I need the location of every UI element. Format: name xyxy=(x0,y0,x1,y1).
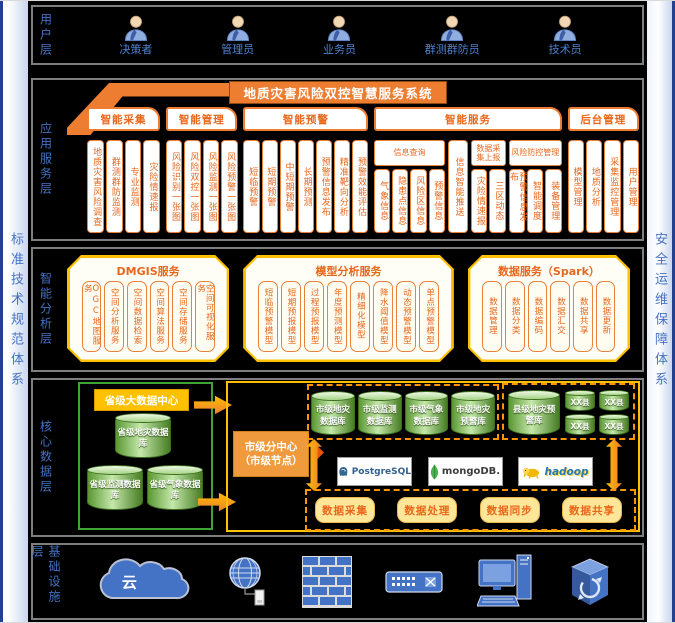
app-column-cell: 风险预警一张图 xyxy=(221,140,237,233)
section-header: 后台管理 xyxy=(568,107,639,131)
analysis-column-cell: 年度预测模型 xyxy=(327,281,347,352)
app-column-cell: 风险监测一张图 xyxy=(203,140,219,233)
app-column-cell: 预警信息发布 xyxy=(509,169,525,233)
analysis-column-cell: 空间存储服务 xyxy=(172,281,192,352)
analysis-column-cell: 精细化模型 xyxy=(350,281,370,352)
app-column-cell: 风险双控一张图 xyxy=(184,140,200,233)
section-cells: 模型管理地质分析采集监控管理用户管理 xyxy=(568,140,639,233)
cloud-label: 云 xyxy=(122,571,137,592)
section-header: 智能管理 xyxy=(166,107,237,131)
county-database-group: 县级地灾预警库 XX县XX县XX县XX县 xyxy=(502,383,635,440)
app-column-cell: 信息智能推送 xyxy=(448,140,468,233)
left-system-bar: 标准技术规范体系 xyxy=(0,1,28,622)
person-icon xyxy=(121,14,151,42)
user-layer-label: 用户层 xyxy=(33,7,59,63)
app-column-cell: 灾险情速报 xyxy=(471,169,488,233)
app-column-cell: 模型管理 xyxy=(568,140,584,233)
vertical-double-arrow-icon xyxy=(606,439,622,491)
app-column-cell: 隐患点信息 xyxy=(392,169,408,233)
firewall-icon xyxy=(302,556,352,608)
user-item: 管理员 xyxy=(221,14,254,57)
county-node-cylinder: XX县 xyxy=(599,416,629,435)
app-column-cell: 地质灾害风险调查 xyxy=(87,140,104,233)
app-column-cell: 气象信息 xyxy=(374,169,390,233)
provincial-bigdata-box: 省级大数据中心 省级地灾数据库 省级监测数据库 省级气象数据库 xyxy=(78,382,213,530)
architecture-diagram: 标准技术规范体系 用户层 决策者 管 xyxy=(0,0,675,623)
user-name: 管理员 xyxy=(221,41,254,57)
router-icon xyxy=(569,557,611,607)
dmgis-service-box: DMGIS服务 OGC地图服务空间分析服务空间数据检索空间算法服务空间存储服务空… xyxy=(67,255,229,362)
analysis-content: DMGIS服务 OGC地图服务空间分析服务空间数据检索空间算法服务空间存储服务空… xyxy=(59,249,642,370)
section-smart-management: 智能管理 风险识别一张图风险双控一张图风险监测一张图风险预警一张图 xyxy=(166,107,237,233)
workstation-computer-icon xyxy=(477,554,535,610)
analysis-column-cell: 数据编码 xyxy=(528,281,548,352)
database-cylinder: 省级监测数据库 xyxy=(87,468,143,510)
app-column-cell: 长期预测 xyxy=(298,140,314,233)
user-name: 业务员 xyxy=(323,41,356,57)
box-title: DMGIS服务 xyxy=(82,263,215,281)
app-column-cell: 群测群防监测 xyxy=(106,140,123,233)
analysis-column-cell: OGC地图服务 xyxy=(82,281,102,352)
provincial-title: 省级大数据中心 xyxy=(94,389,189,411)
section-cells: 短临预警短期预警中短期预警长期预测预警信息发布精准靶向分析预警效能评估 xyxy=(243,140,368,233)
section-admin: 后台管理 模型管理地质分析采集监控管理用户管理 xyxy=(568,107,639,233)
data-layer-label: 核心数据层 xyxy=(33,380,59,535)
application-service-layer: 应用服务层 地质灾害风险双控智慧服务系统 智能采集 地质灾害风险调查群测群防监测… xyxy=(31,78,644,241)
person-icon xyxy=(437,14,467,42)
municipal-title: 市级分中心 （市级节点） xyxy=(233,431,309,477)
user-item: 决策者 xyxy=(119,14,152,57)
section-smart-collection: 智能采集 地质灾害风险调查群测群防监测专业监测灾险情速报 xyxy=(87,107,160,233)
section-smart-service: 智能服务 信息查询 气象信息隐患点信息风险区信息预警信息 信息智能推送 数据采集… xyxy=(374,107,561,233)
postgresql-logo: PostgreSQL xyxy=(337,457,412,486)
database-engines: PostgreSQL mongoDB. xyxy=(337,457,593,486)
app-column-cell: 短期预警 xyxy=(262,140,278,233)
data-service-button: 数据采集 xyxy=(315,497,375,523)
cloud-icon: 云 xyxy=(90,552,194,612)
group-data-report: 数据采集上报 灾险情速报三区动态 xyxy=(471,140,506,233)
analysis-column-cell: 降水阈值模型 xyxy=(373,281,393,352)
data-service-box: 数据服务（Spark） 数据管理数据分类数据编码数据汇交数据共享数据更新 xyxy=(468,255,630,362)
group-header: 信息查询 xyxy=(374,140,444,166)
user-item: 技术员 xyxy=(549,14,582,57)
hadoop-logo: hadoop xyxy=(518,457,593,486)
analysis-column-cell: 数据汇交 xyxy=(550,281,570,352)
app-column-cell: 风险区信息 xyxy=(410,169,426,233)
section-cells: 地质灾害风险调查群测群防监测专业监测灾险情速报 xyxy=(87,140,160,233)
app-column-cell: 预警信息发布 xyxy=(316,140,332,233)
user-name: 技术员 xyxy=(549,41,582,57)
analysis-column-cell: 单点预警模型 xyxy=(419,281,439,352)
person-icon xyxy=(223,14,253,42)
app-column-cell: 专业监测 xyxy=(125,140,142,233)
section-header: 智能采集 xyxy=(87,107,160,131)
section-cells: 风险识别一张图风险双控一张图风险监测一张图风险预警一张图 xyxy=(166,140,237,233)
county-node-cylinder: XX县 xyxy=(565,392,595,411)
infrastructure-layer: 基础设施层 云 xyxy=(31,543,644,620)
user-layer: 用户层 决策者 管理员 xyxy=(31,5,644,65)
analysis-column-cell: 短临预警模型 xyxy=(258,281,278,352)
analysis-column-cell: 数据共享 xyxy=(573,281,593,352)
app-column-cell: 灾险情速报 xyxy=(143,140,160,233)
municipal-center-box: 市级分中心 （市级节点） 市级地灾数据库市级监测数据库市级气象数据库市级地灾预警… xyxy=(226,381,640,532)
analysis-column-cell: 过程预报模型 xyxy=(304,281,324,352)
analysis-column-cell: 数据分类 xyxy=(505,281,525,352)
analysis-column-cell: 数据管理 xyxy=(482,281,502,352)
user-item: 业务员 xyxy=(323,14,356,57)
group-header: 风险防控管理 xyxy=(509,140,562,166)
data-service-button: 数据处理 xyxy=(397,497,457,523)
leaf-icon xyxy=(430,463,439,480)
app-column-cell: 智能调度 xyxy=(527,169,543,233)
user-name: 决策者 xyxy=(119,41,152,57)
app-column-cell: 用户管理 xyxy=(623,140,639,233)
user-name: 群测群防员 xyxy=(425,41,480,57)
infra-icons: 云 xyxy=(59,545,642,618)
diagram-main: 用户层 决策者 管理员 xyxy=(28,1,647,622)
internet-globe-icon xyxy=(228,556,268,608)
analysis-layer-label: 智能分析层 xyxy=(33,249,59,370)
analysis-layer: 智能分析层 DMGIS服务 OGC地图服务空间分析服务空间数据检索空间算法服务空… xyxy=(31,247,644,372)
app-sections: 智能采集 地质灾害风险调查群测群防监测专业监测灾险情速报 智能管理 风险识别一张… xyxy=(87,107,639,233)
data-service-button: 数据共享 xyxy=(562,497,622,523)
app-content: 地质灾害风险双控智慧服务系统 智能采集 地质灾害风险调查群测群防监测专业监测灾险… xyxy=(59,80,642,239)
app-column-cell: 风险识别一张图 xyxy=(166,140,182,233)
section-header: 智能预警 xyxy=(243,107,368,131)
county-node-cylinder: XX县 xyxy=(565,416,595,435)
data-service-button: 数据同步 xyxy=(480,497,540,523)
database-cylinder: 市级气象数据库 xyxy=(405,394,449,435)
county-node-cylinder: XX县 xyxy=(599,392,629,411)
app-column-cell: 短临预警 xyxy=(243,140,259,233)
analysis-column-cell: 空间分析服务 xyxy=(104,281,124,352)
database-cylinder: 省级气象数据库 xyxy=(147,468,203,510)
user-item: 群测群防员 xyxy=(425,14,480,57)
data-service-bar: 数据采集数据处理数据同步数据共享 xyxy=(305,489,636,531)
county-node-grid: XX县XX县XX县XX县 xyxy=(565,391,629,435)
mongodb-logo: mongoDB. xyxy=(428,457,503,486)
system-title-banner: 地质灾害风险双控智慧服务系统 xyxy=(229,81,447,104)
right-system-label: 安全运维保障体系 xyxy=(650,232,669,392)
model-analysis-box: 模型分析服务 短临预警模型短期预报模型过程预报模型年度预测模型精细化模型降水阈值… xyxy=(243,255,454,362)
right-system-bar: 安全运维保障体系 xyxy=(647,1,675,622)
database-cylinder: 市级地灾数据库 xyxy=(311,394,355,435)
group-risk-control: 风险防控管理 预警信息发布智能调度装备管理 xyxy=(509,140,562,233)
section-header: 智能服务 xyxy=(374,107,561,131)
infra-layer-label: 基础设施层 xyxy=(33,545,59,618)
app-column-cell: 装备管理 xyxy=(545,169,561,233)
database-cylinder: 县级地灾预警库 xyxy=(508,393,560,435)
user-list: 决策者 管理员 业务员 xyxy=(59,7,642,63)
database-cylinder: 省级地灾数据库 xyxy=(115,416,171,458)
core-data-layer: 核心数据层 省级大数据中心 省级地灾数据库 省级监测数据库 省级气象数据库 市级… xyxy=(31,378,644,537)
database-cylinder: 市级地灾预警库 xyxy=(451,394,495,435)
app-column-cell: 中短期预警 xyxy=(280,140,296,233)
elephant-head-icon xyxy=(338,464,349,480)
app-layer-label: 应用服务层 xyxy=(33,80,59,239)
left-system-label: 标准技术规范体系 xyxy=(6,232,25,392)
network-switch-icon xyxy=(385,569,443,595)
app-column-cell: 采集监控管理 xyxy=(604,140,620,233)
analysis-column-cell: 空间可视化服务 xyxy=(195,281,215,352)
analysis-column-cell: 短期预报模型 xyxy=(281,281,301,352)
yellow-elephant-icon xyxy=(522,465,541,479)
person-icon xyxy=(324,14,354,42)
analysis-column-cell: 动态预警模型 xyxy=(396,281,416,352)
database-cylinder: 市级监测数据库 xyxy=(358,394,402,435)
box-title: 模型分析服务 xyxy=(258,263,440,281)
person-icon xyxy=(550,14,580,42)
group-header: 数据采集上报 xyxy=(471,140,506,166)
group-info-push: 信息智能推送 xyxy=(448,140,468,233)
box-title: 数据服务（Spark） xyxy=(482,263,615,281)
analysis-column-cell: 数据更新 xyxy=(596,281,616,352)
municipal-database-group: 市级地灾数据库市级监测数据库市级气象数据库市级地灾预警库 xyxy=(307,384,499,440)
data-content: 省级大数据中心 省级地灾数据库 省级监测数据库 省级气象数据库 市级分中心 （市… xyxy=(59,380,642,535)
app-column-cell: 三区动态 xyxy=(489,169,506,233)
analysis-column-cell: 空间数据检索 xyxy=(127,281,147,352)
analysis-column-cell: 空间算法服务 xyxy=(150,281,170,352)
app-column-cell: 精准靶向分析 xyxy=(334,140,350,233)
group-info-query: 信息查询 气象信息隐患点信息风险区信息预警信息 xyxy=(374,140,444,233)
app-column-cell: 预警信息 xyxy=(429,169,445,233)
service-groups: 信息查询 气象信息隐患点信息风险区信息预警信息 信息智能推送 数据采集上报 灾险… xyxy=(374,140,561,233)
app-column-cell: 地质分析 xyxy=(586,140,602,233)
section-smart-warning: 智能预警 短临预警短期预警中短期预警长期预测预警信息发布精准靶向分析预警效能评估 xyxy=(243,107,368,233)
app-column-cell: 预警效能评估 xyxy=(352,140,368,233)
